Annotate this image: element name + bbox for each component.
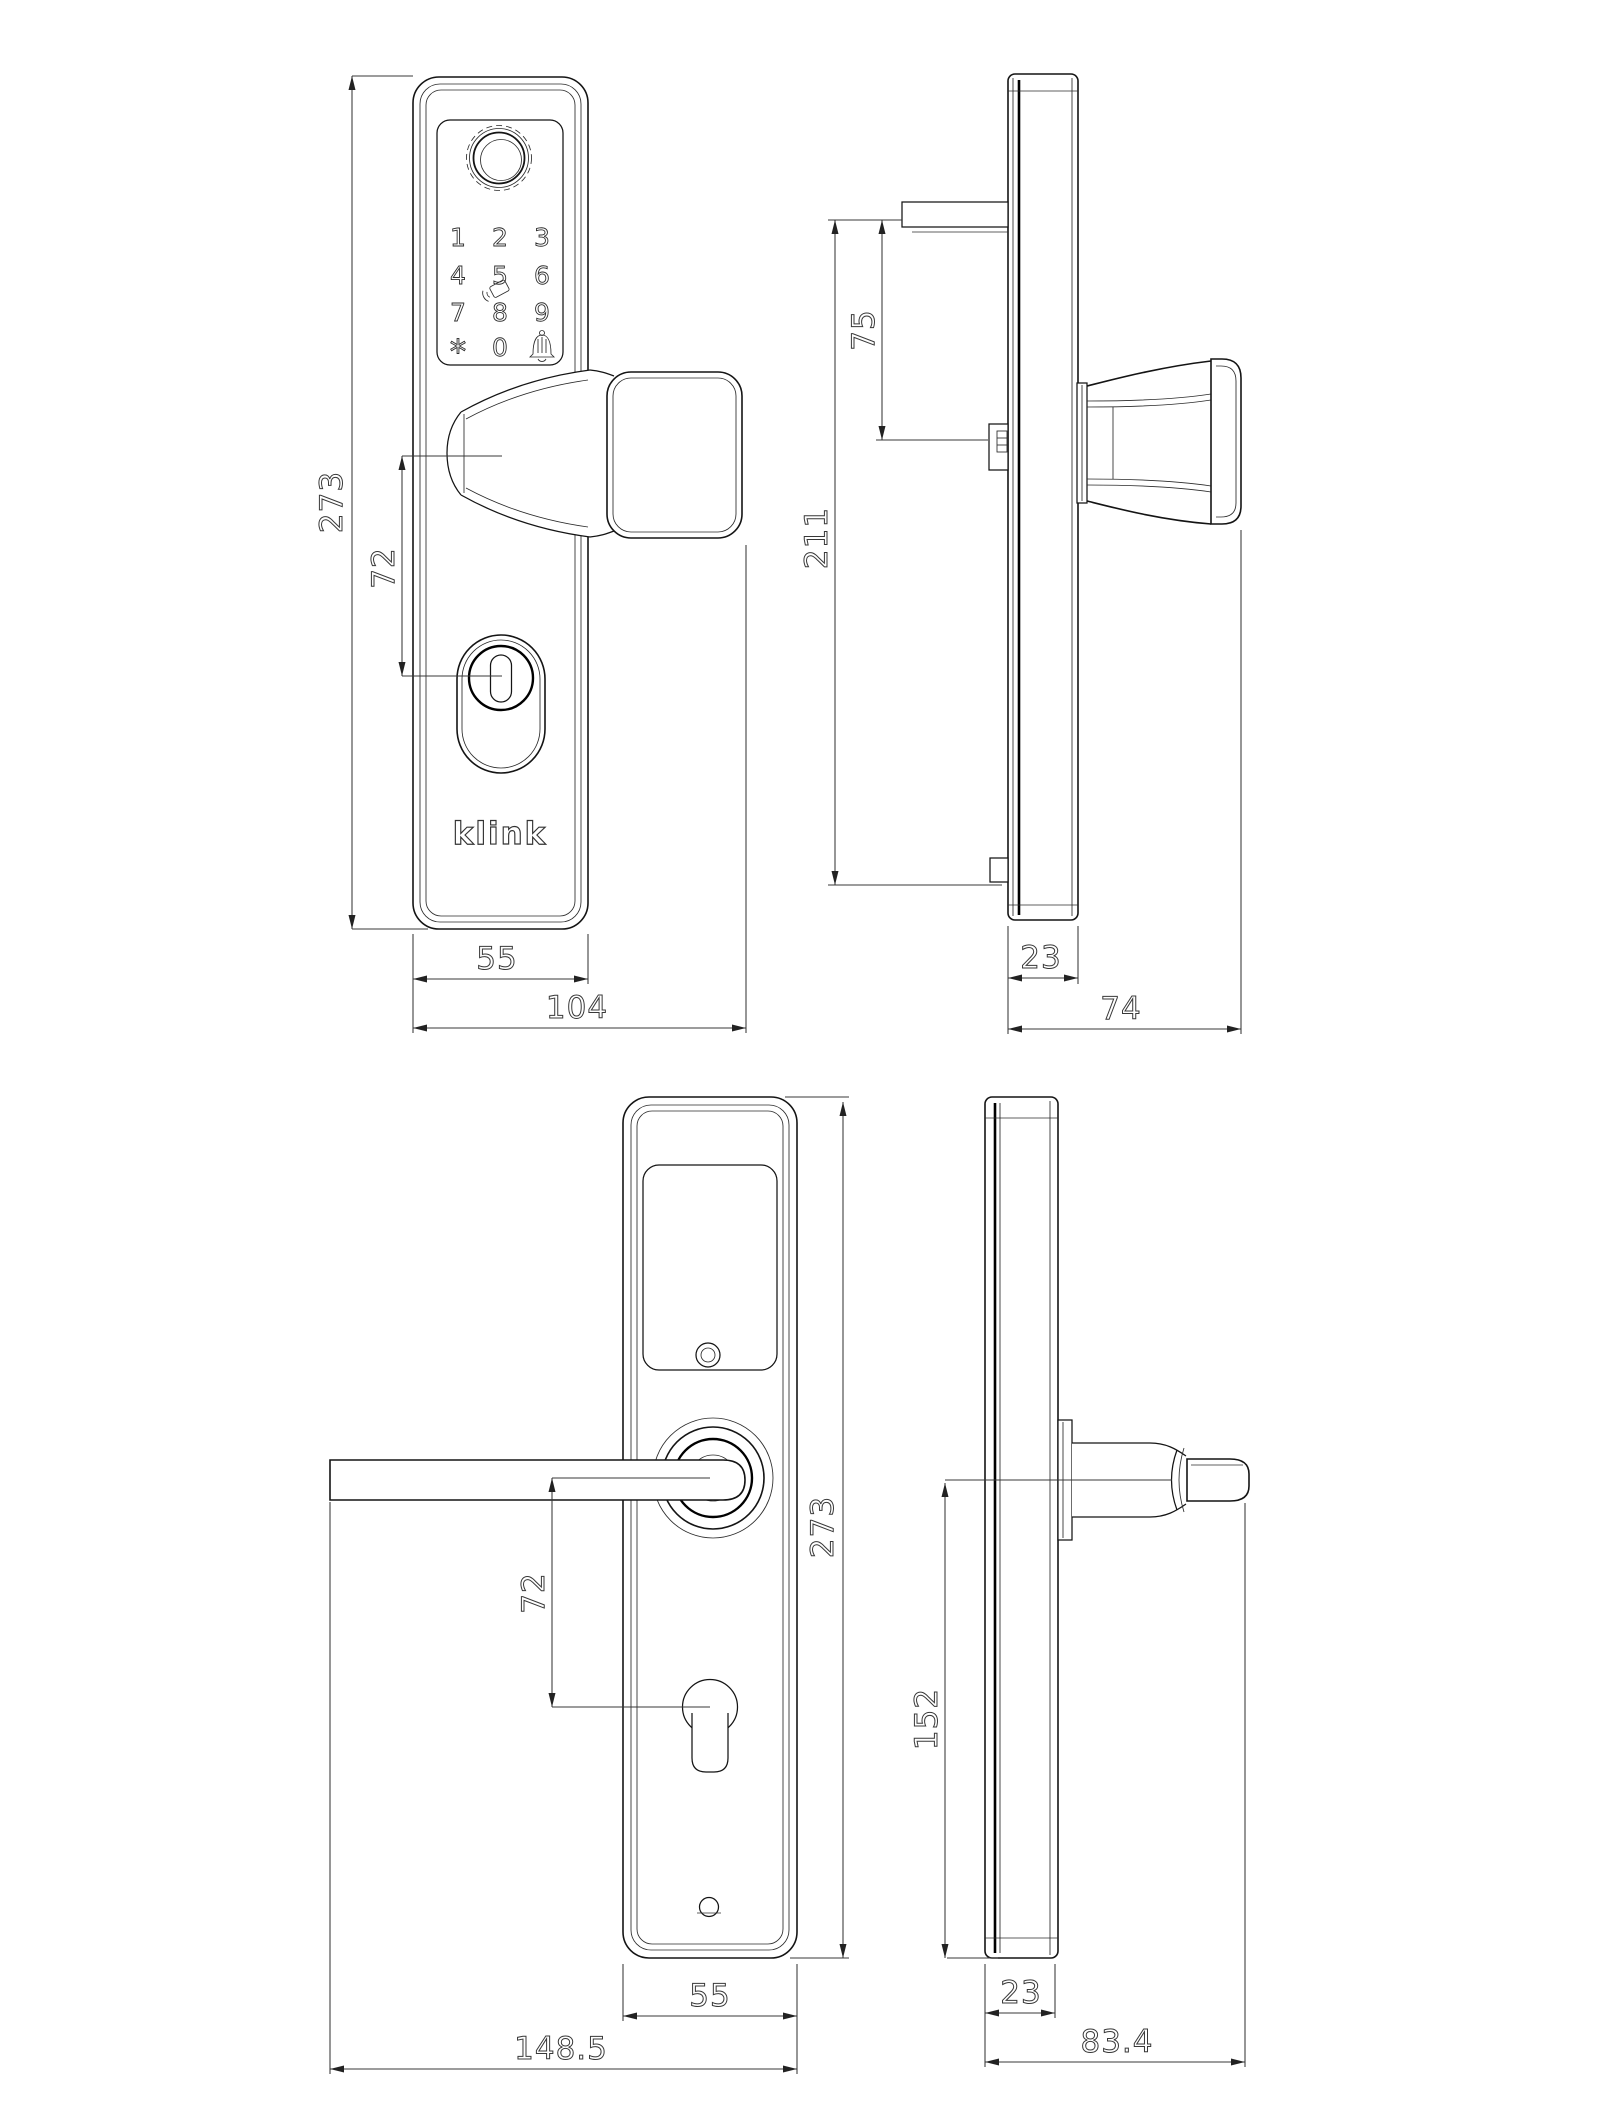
spindle-set-screw xyxy=(989,424,1008,470)
dim-value-83-4: 83.4 xyxy=(1080,2024,1153,2060)
interior-plate-inner-contour2 xyxy=(637,1111,783,1944)
interior-front-view: 273 72 55 148.5 xyxy=(330,1097,849,2074)
dim-interior-plate-width: 55 xyxy=(623,1964,797,2074)
dim-value-104: 104 xyxy=(546,990,608,1026)
dim-value-211: 211 xyxy=(799,507,835,569)
fingerprint-scanner-icon xyxy=(467,126,532,191)
knob-end-cap xyxy=(1211,359,1241,524)
key-8: 8 xyxy=(492,298,508,327)
key-3: 3 xyxy=(534,223,550,252)
knob-grip xyxy=(607,372,742,538)
lever-handle-bar xyxy=(330,1460,745,1500)
key-7: 7 xyxy=(450,298,466,327)
exterior-front-view: 1 2 3 4 5 6 7 8 9 * 0 xyxy=(314,76,746,1033)
dim-value-74: 74 xyxy=(1100,991,1141,1027)
battery-cover xyxy=(643,1165,777,1370)
brand-logo: klink xyxy=(453,816,548,852)
exterior-knob-handle xyxy=(447,370,742,538)
dim-value-72: 72 xyxy=(366,547,402,588)
key-9: 9 xyxy=(534,298,550,327)
bottom-fixing-screw xyxy=(697,1898,721,1917)
dim-value-148-5: 148.5 xyxy=(514,2031,608,2067)
technical-drawing-page: 1 2 3 4 5 6 7 8 9 * 0 xyxy=(0,0,1600,2100)
top-mounting-tab xyxy=(902,202,1008,227)
dim-exterior-height: 273 xyxy=(314,76,428,929)
doorbell-icon xyxy=(530,331,554,362)
dim-value-72-int: 72 xyxy=(516,1572,552,1613)
dim-value-55-int: 55 xyxy=(689,1978,730,2014)
dim-interior-plate-depth: 23 xyxy=(985,1964,1055,2067)
dim-exterior-mounting-height: 211 xyxy=(799,220,1002,885)
interior-side-view: 152 23 83.4 xyxy=(909,1097,1249,2067)
dim-exterior-overall-width: 104 xyxy=(413,545,746,1033)
dim-value-23-int: 23 xyxy=(1000,1975,1041,2011)
dim-value-75: 75 xyxy=(846,309,882,350)
dim-exterior-tab-to-spindle: 75 xyxy=(828,220,988,440)
keyway-icon xyxy=(491,655,512,702)
bottom-mounting-tab xyxy=(990,858,1008,882)
dim-value-273: 273 xyxy=(314,471,350,533)
dim-value-55: 55 xyxy=(476,941,517,977)
interior-plate-inner-contour xyxy=(631,1105,789,1950)
key-6: 6 xyxy=(534,261,550,290)
key-cylinder xyxy=(457,635,545,773)
keypad: 1 2 3 4 5 6 7 8 9 * 0 xyxy=(437,120,563,371)
interior-plate-outline xyxy=(623,1097,797,1958)
key-1: 1 xyxy=(450,223,466,252)
key-star: * xyxy=(450,332,467,371)
dim-interior-handle-to-cylinder: 72 xyxy=(516,1478,710,1707)
dim-exterior-plate-depth: 23 xyxy=(1008,926,1078,1034)
dim-value-273-int: 273 xyxy=(805,1496,841,1558)
key-0: 0 xyxy=(492,333,508,362)
dim-interior-height: 273 xyxy=(785,1097,849,1958)
key-4: 4 xyxy=(450,261,466,290)
dim-value-152: 152 xyxy=(909,1688,945,1750)
exterior-knob-side xyxy=(1077,359,1241,524)
battery-cover-screw xyxy=(696,1343,720,1367)
exterior-side-view: 75 211 23 74 xyxy=(799,74,1241,1034)
smart-lock-dimension-drawing: 1 2 3 4 5 6 7 8 9 * 0 xyxy=(0,0,1600,2100)
key-2: 2 xyxy=(492,223,508,252)
euro-cylinder-keyhole xyxy=(683,1680,738,1773)
key-5: 5 xyxy=(492,261,508,290)
dim-value-23-ext: 23 xyxy=(1020,940,1061,976)
